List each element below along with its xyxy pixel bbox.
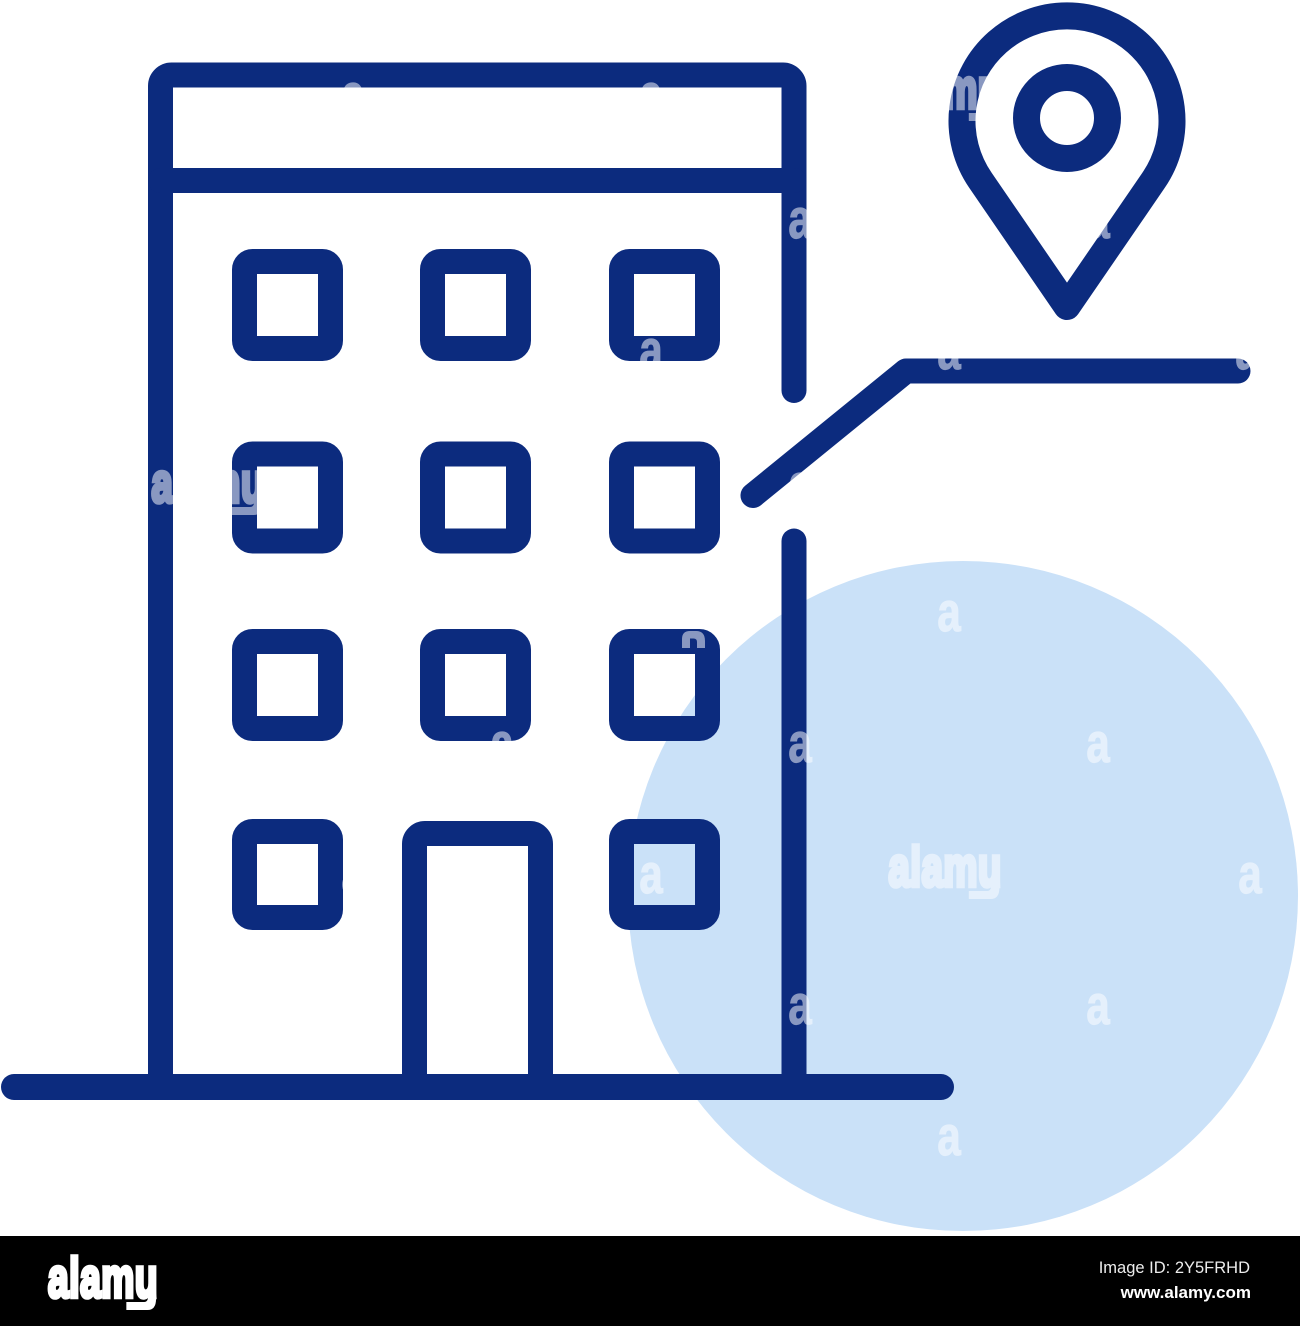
svg-text:alamu: alamu <box>48 1247 158 1310</box>
svg-text:a: a <box>1086 712 1110 774</box>
svg-text:alamu: alamu <box>152 453 265 515</box>
svg-text:alamu: alamu <box>889 59 1002 121</box>
svg-text:a: a <box>937 581 961 643</box>
svg-text:a: a <box>1086 453 1110 515</box>
svg-text:a: a <box>639 1105 663 1167</box>
svg-text:a: a <box>788 974 812 1036</box>
svg-text:a: a <box>1235 581 1259 643</box>
svg-text:a: a <box>1235 63 1259 125</box>
svg-text:a: a <box>937 1105 961 1167</box>
svg-text:a: a <box>639 63 663 125</box>
svg-text:Image ID: 2Y5FRHD: Image ID: 2Y5FRHD <box>1099 1259 1250 1277</box>
svg-text:a: a <box>639 319 663 381</box>
svg-text:a: a <box>490 188 514 250</box>
svg-text:a: a <box>1086 188 1110 250</box>
svg-text:a: a <box>1086 974 1110 1036</box>
svg-text:a: a <box>1235 1105 1259 1167</box>
svg-text:a: a <box>788 188 812 250</box>
svg-text:a: a <box>341 1105 365 1167</box>
svg-text:a: a <box>192 974 216 1036</box>
svg-text:a: a <box>192 188 216 250</box>
svg-text:a: a <box>341 843 365 905</box>
svg-text:a: a <box>639 843 663 905</box>
svg-text:a: a <box>1235 319 1259 381</box>
svg-text:a: a <box>490 712 514 774</box>
svg-text:a: a <box>341 581 365 643</box>
svg-text:a: a <box>937 319 961 381</box>
svg-text:a: a <box>490 974 514 1036</box>
svg-text:a: a <box>341 63 365 125</box>
svg-text:a: a <box>788 453 812 515</box>
svg-text:a: a <box>788 712 812 774</box>
svg-text:a: a <box>1238 843 1262 905</box>
svg-text:www.alamy.com: www.alamy.com <box>1120 1283 1251 1302</box>
svg-text:alamu: alamu <box>889 837 1002 899</box>
svg-text:a: a <box>341 319 365 381</box>
svg-text:a: a <box>192 712 216 774</box>
